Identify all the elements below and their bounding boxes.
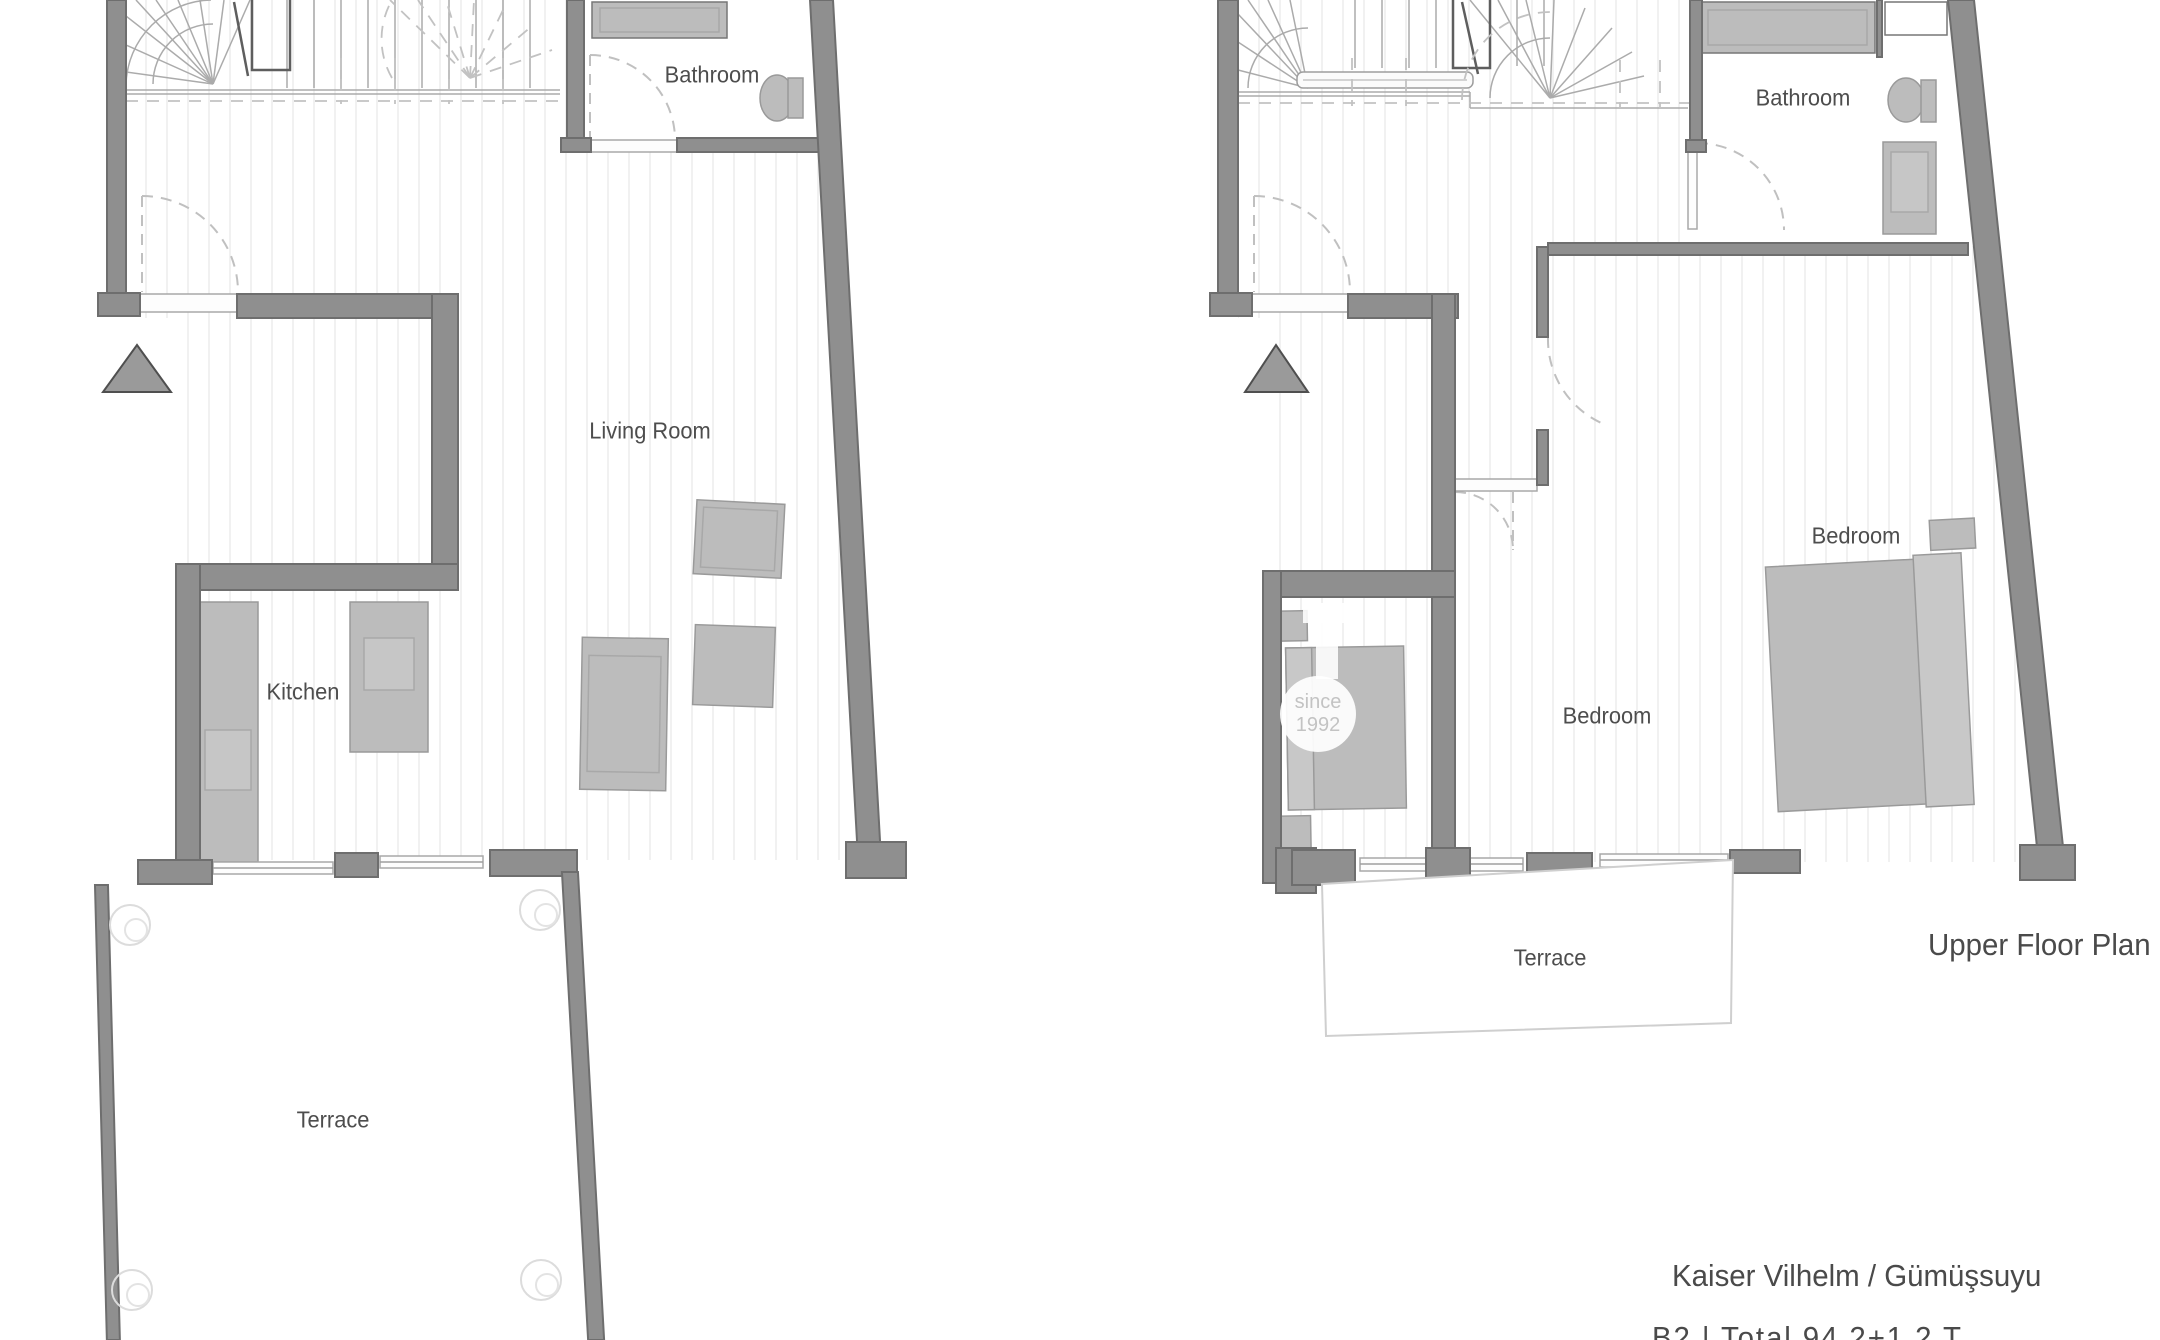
toilet-tank — [1921, 80, 1936, 122]
room-label-kitchen: Kitchen — [267, 679, 340, 706]
room-label-terrace: Terrace — [1514, 945, 1587, 972]
plan-linework — [0, 0, 2160, 1340]
sofa-icon — [580, 637, 669, 790]
watermark-year: 1992 — [1296, 714, 1341, 737]
room-label-living-room: Living Room — [589, 418, 710, 445]
toilet-icon — [1888, 78, 1924, 122]
bath-threshold — [1688, 145, 1697, 229]
kitchen-sink — [205, 730, 251, 790]
bath-threshold — [584, 140, 677, 152]
room-label-bedroom: Bedroom — [1812, 523, 1901, 550]
staircase-upper-dark — [1453, 0, 1490, 74]
sink-icon — [1885, 2, 1947, 35]
room-label-bedroom: Bedroom — [1563, 703, 1652, 730]
armchair-icon — [693, 500, 785, 579]
coffee-table-icon — [693, 625, 776, 708]
entry-door-arc — [142, 196, 238, 292]
details-line-clipped: B2 | Total 94 2+1 2 T — [1652, 1320, 1963, 1340]
toilet-tank — [788, 78, 803, 118]
watermark-since: since — [1295, 691, 1342, 714]
bed-icon — [1763, 518, 1989, 815]
staircase — [126, 0, 560, 94]
room-label-bathroom: Bathroom — [665, 62, 760, 89]
room-label-bathroom: Bathroom — [1756, 85, 1851, 112]
bedroom-door-arc — [1455, 492, 1513, 550]
nightstand-icon — [1929, 518, 1976, 550]
watermark-letter — [1316, 603, 1338, 679]
cooktop — [364, 638, 414, 690]
bedroom-threshold — [1455, 479, 1537, 491]
hall-door-arc — [1548, 337, 1606, 425]
floor-patches — [88, 0, 2017, 888]
staircase-dark-lines — [234, 0, 290, 76]
entry-threshold — [1252, 294, 1348, 312]
room-label-terrace: Terrace — [297, 1107, 370, 1134]
entry-threshold — [140, 294, 237, 312]
entry-door-arc — [1254, 196, 1350, 292]
plan-caption: Upper Floor Plan — [1928, 927, 2151, 963]
staircase-upper-dashed — [1238, 12, 1690, 108]
project-title: Kaiser Vilhelm / Gümüşsuyu — [1672, 1258, 2041, 1294]
watermark-badge: since 1992 — [1280, 676, 1356, 752]
terrace-plants — [110, 890, 561, 1310]
floor-plan-sheet: Bathroom Living Room Kitchen Terrace Bat… — [0, 0, 2160, 1340]
